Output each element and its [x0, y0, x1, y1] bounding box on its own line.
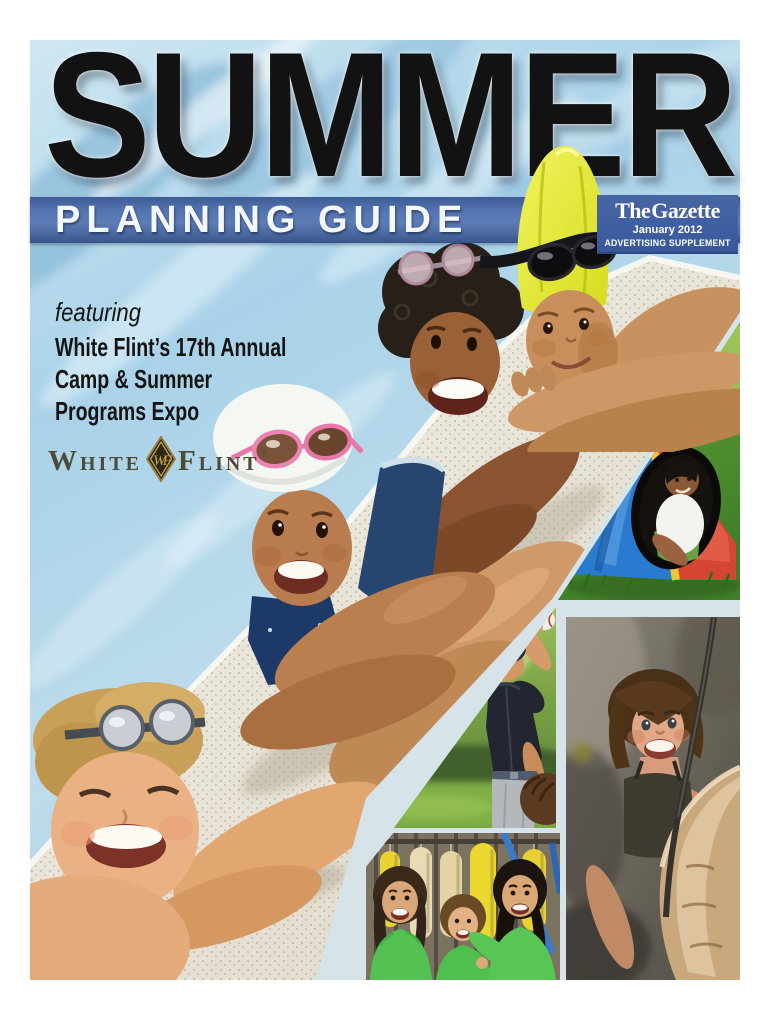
- climber-photo: [566, 617, 740, 980]
- camp-kids-photo: [366, 833, 560, 980]
- gazette-name: The Gazette: [597, 200, 738, 222]
- gazette-masthead: The Gazette January 2012 ADVERTISING SUP…: [597, 195, 738, 254]
- white-flint-diamond-icon: WF: [146, 436, 176, 487]
- gazette-issue: January 2012: [597, 224, 738, 236]
- feature-line-1: White Flint’s 17th Annual: [55, 331, 286, 363]
- magazine-cover-page: SUMMER PLANNING GUIDE: [0, 0, 770, 1024]
- white-flint-logo: White WF Flint ®: [48, 436, 268, 487]
- banner-label: PLANNING GUIDE: [30, 199, 468, 242]
- white-flint-word-white: White: [48, 447, 142, 476]
- registered-mark: ®: [261, 447, 268, 457]
- feature-line-2: Camp & Summer: [55, 363, 286, 395]
- feature-kicker: featuring: [55, 298, 317, 326]
- feature-block: featuring White Flint’s 17th Annual Camp…: [55, 298, 364, 427]
- feature-line-3: Programs Expo: [55, 395, 286, 427]
- cover-title: SUMMER: [44, 26, 734, 204]
- gazette-supplement: ADVERTISING SUPPLEMENT: [599, 238, 736, 248]
- white-flint-word-flint: Flint: [178, 447, 260, 476]
